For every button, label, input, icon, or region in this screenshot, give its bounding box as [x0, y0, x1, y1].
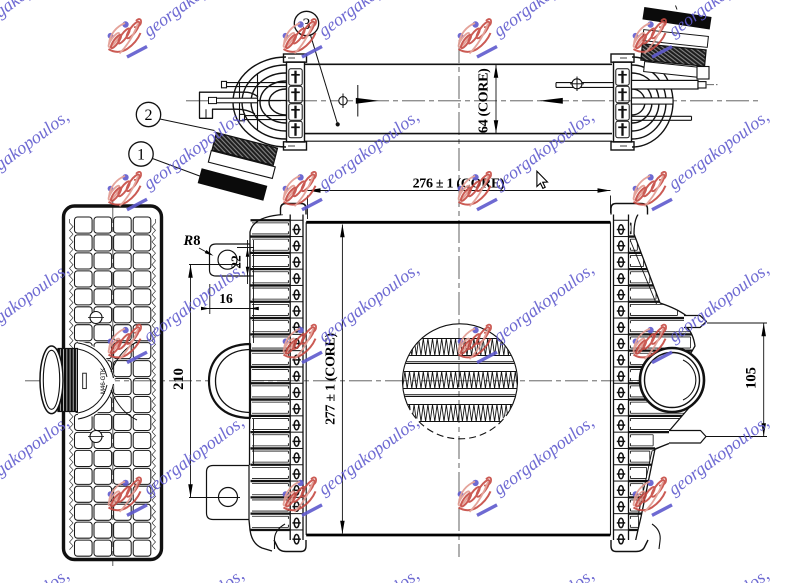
svg-text:1: 1	[137, 147, 145, 164]
svg-text:210: 210	[171, 368, 187, 390]
svg-text:R8: R8	[183, 233, 201, 249]
svg-text:2: 2	[145, 107, 153, 124]
svg-text:64 (CORE): 64 (CORE)	[477, 68, 492, 133]
svg-text:M46-GTK: M46-GTK	[101, 368, 107, 394]
svg-text:105: 105	[744, 367, 760, 389]
